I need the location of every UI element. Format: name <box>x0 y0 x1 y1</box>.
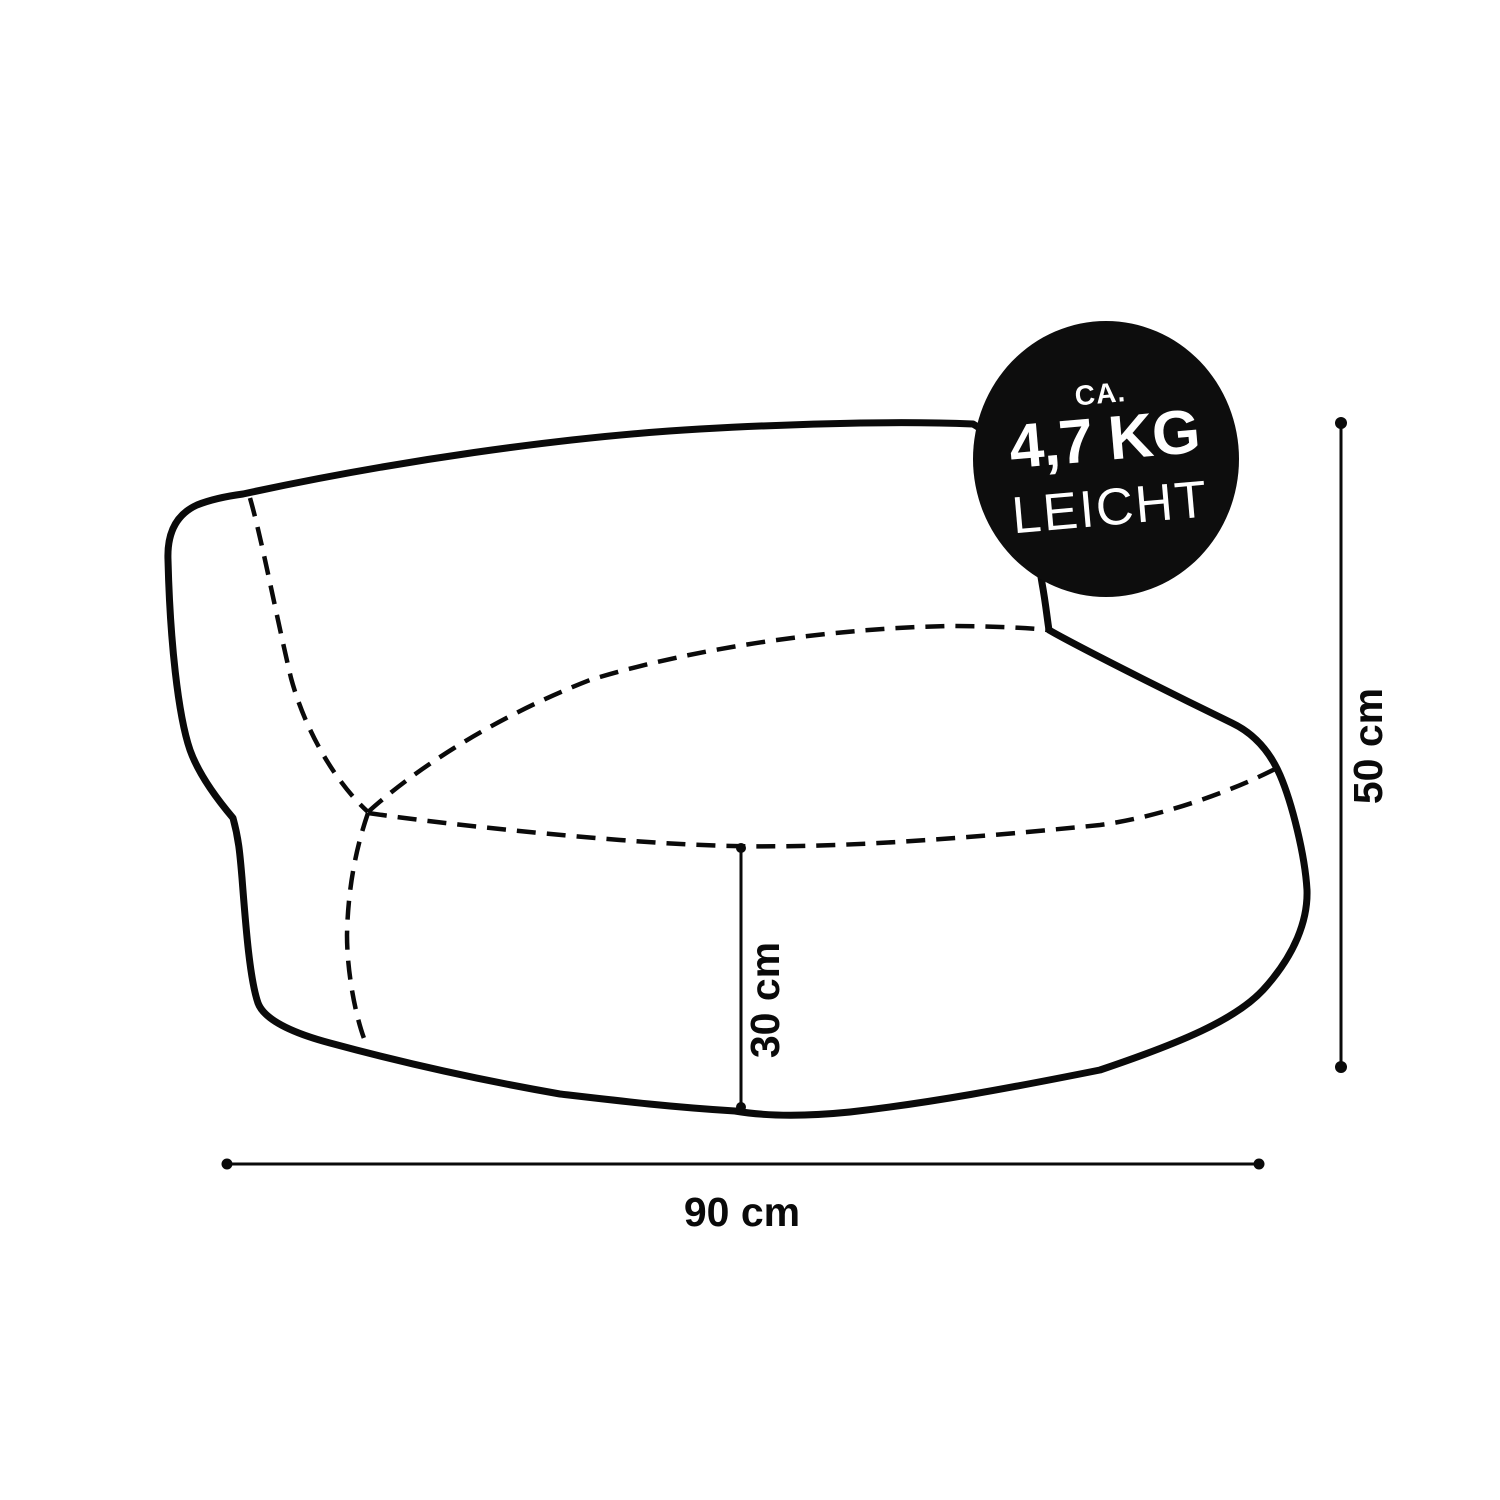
seat-cushion-bottom-dashed <box>368 769 1275 846</box>
dimension-seat-height: 30 cm <box>736 843 788 1112</box>
seam-front-left-dashed <box>347 813 368 1048</box>
seat-height-dimension-label: 30 cm <box>742 942 788 1058</box>
height-top-endpoint-dot <box>1335 417 1347 429</box>
height-dimension-label: 50 cm <box>1345 688 1391 804</box>
dimension-height: 50 cm <box>1335 417 1391 1073</box>
width-left-endpoint-dot <box>222 1159 233 1170</box>
height-bottom-endpoint-dot <box>1335 1061 1347 1073</box>
width-right-endpoint-dot <box>1254 1159 1265 1170</box>
width-dimension-label: 90 cm <box>684 1189 800 1235</box>
seat-height-bottom-endpoint-dot <box>736 1102 746 1112</box>
product-dimension-diagram: 30 cm 50 cm 90 cm CA. 4,7 KG LEICHT <box>0 0 1500 1500</box>
weight-badge: CA. 4,7 KG LEICHT <box>973 321 1239 597</box>
seat-cushion-top-dashed <box>368 626 1048 812</box>
dimension-width: 90 cm <box>222 1159 1265 1236</box>
seat-height-top-endpoint-dot <box>736 843 746 853</box>
diagram-canvas: 30 cm 50 cm 90 cm CA. 4,7 KG LEICHT <box>0 0 1500 1500</box>
seam-backrest-left-dashed <box>250 498 368 812</box>
